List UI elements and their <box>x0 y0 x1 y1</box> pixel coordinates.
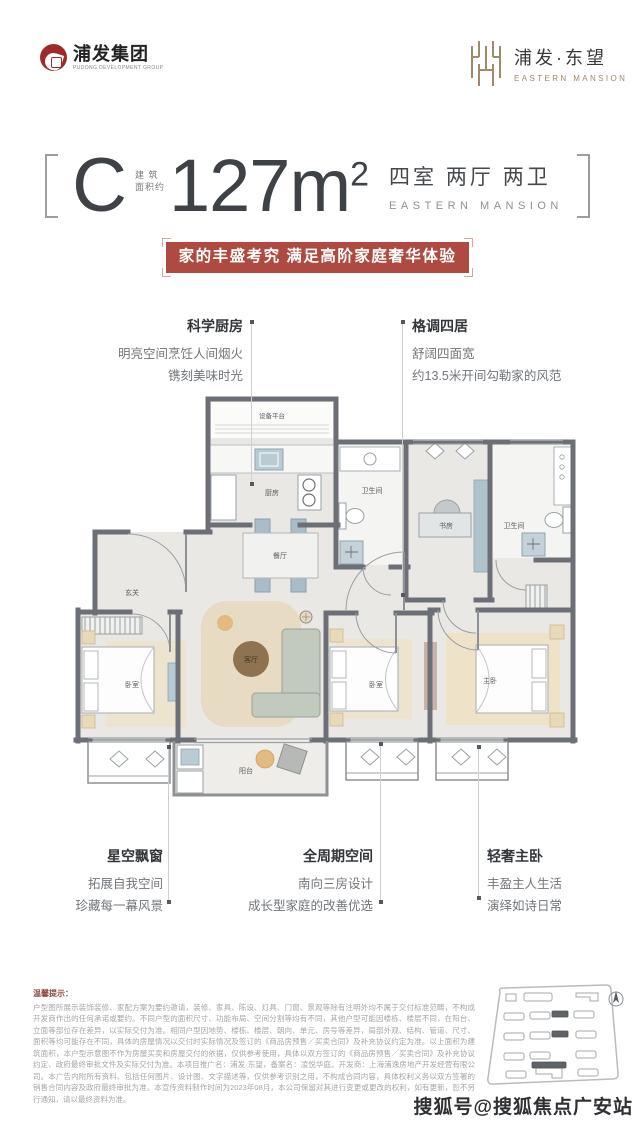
room-label-master: 主卧 <box>483 676 497 685</box>
pudong-group-icon <box>40 44 67 71</box>
callout-kitchen-line2: 镌刻美味时光 <box>60 365 243 387</box>
callout-kitchen: 科学厨房 明亮空间烹饪人间烟火 镌刻美味时光 <box>60 316 243 387</box>
room-count-sub: EASTERN MANSION <box>389 200 563 212</box>
callout-bay-window-line1: 拓展自我空间 <box>20 873 163 895</box>
leader-line-full-cycle <box>380 744 381 902</box>
room-label-equipment: 设备平台 <box>259 411 285 420</box>
developer-logo-name: 浦发集团 <box>73 45 163 63</box>
callout-full-cycle-line2: 成长型家庭的改善优选 <box>180 895 373 917</box>
living-room-furniture <box>201 601 320 727</box>
area-note-line2: 面积约 <box>135 181 165 193</box>
callout-master: 轻奢主卧 丰盈主人生活 演绎如诗日常 <box>487 846 632 917</box>
unit-area: 127m2 <box>169 153 369 220</box>
callout-four-rooms-line2: 约13.5米开间勾勒家的风范 <box>412 365 624 387</box>
callout-bay-window-line2: 珍藏每一幕风景 <box>20 895 163 917</box>
callout-full-cycle-title: 全周期空间 <box>180 846 373 866</box>
room-count: 四室 两厅 两卫 EASTERN MANSION <box>389 161 563 212</box>
right-bracket <box>577 154 590 218</box>
area-superscript: 2 <box>350 155 369 193</box>
eastern-mansion-emblem-icon <box>468 40 504 92</box>
room-label-foyer: 玄关 <box>125 588 139 597</box>
project-logo-name: 浦发·东望 <box>514 49 627 67</box>
developer-logo: 浦发集团 PUDONG DEVELOPMENT GROUP <box>40 44 163 71</box>
project-logo: 浦发·东望 EASTERN MANSION <box>468 40 627 92</box>
callout-four-rooms-line1: 舒阔四面宽 <box>412 343 624 365</box>
callout-four-rooms: 格调四居 舒阔四面宽 约13.5米开间勾勒家的风范 <box>412 316 624 387</box>
callout-master-line2: 演绎如诗日常 <box>487 895 632 917</box>
callout-kitchen-title: 科学厨房 <box>60 316 243 336</box>
callout-four-rooms-title: 格调四居 <box>412 316 624 336</box>
floorplan: 设备平台 厨房 餐厅 玄关 卫生间 书房 卫生间 卧室 客厅 阳台 卧室 主卧 <box>58 395 578 807</box>
leader-line-bay-window <box>168 747 169 902</box>
unit-headline: C 建 筑 面积约 127m2 四室 两厅 两卫 EASTERN MANSION <box>0 152 635 220</box>
callout-full-cycle: 全周期空间 南向三房设计 成长型家庭的改善优选 <box>180 846 373 917</box>
watermark: 搜狐号@搜狐焦点广安站 <box>413 1092 633 1119</box>
room-label-study: 书房 <box>439 521 453 530</box>
project-logo-sub: EASTERN MANSION <box>514 74 627 83</box>
disclaimer-text: 户型图所展示装饰装修、家配方案为要约邀请，装修、家具、陈设、灯具、门窗、景观等除… <box>33 1003 475 1104</box>
unit-letter: C <box>72 152 127 220</box>
room-label-bath2: 卫生间 <box>504 521 525 530</box>
room-label-bedroom2: 卧室 <box>369 680 383 689</box>
leader-line-kitchen <box>251 322 252 484</box>
callout-kitchen-line1: 明亮空间烹饪人间烟火 <box>60 343 243 365</box>
room-label-kitchen: 厨房 <box>265 488 279 497</box>
siteplan <box>480 983 632 1091</box>
disclaimer: 温馨提示： 户型图所展示装饰装修、家配方案为要约邀请，装修、家具、陈设、灯具、门… <box>33 988 475 1105</box>
callout-full-cycle-line1: 南向三房设计 <box>180 873 373 895</box>
developer-logo-sub: PUDONG DEVELOPMENT GROUP <box>73 65 163 71</box>
room-label-bedroom1: 卧室 <box>125 680 139 689</box>
leader-line-four-rooms <box>402 322 403 595</box>
area-note: 建 筑 面积约 <box>135 169 165 193</box>
callout-master-title: 轻奢主卧 <box>487 846 632 866</box>
left-bracket <box>45 154 58 218</box>
callout-master-line1: 丰盈主人生活 <box>487 873 632 895</box>
room-count-text: 四室 两厅 两卫 <box>389 161 563 191</box>
callout-bay-window: 星空飘窗 拓展自我空间 珍藏每一幕风景 <box>20 846 163 917</box>
slogan-banner-corners: 家的丰盛考究 满足高阶家庭奢华体验 <box>166 242 470 273</box>
disclaimer-label: 温馨提示： <box>33 988 475 1000</box>
room-label-bath1: 卫生间 <box>362 486 383 495</box>
room-label-dining: 餐厅 <box>273 551 287 560</box>
area-note-line1: 建 筑 <box>135 169 165 181</box>
leader-line-master <box>478 747 479 898</box>
room-label-balcony: 阳台 <box>239 766 253 775</box>
room-label-living: 客厅 <box>244 655 258 664</box>
poster-page: 浦发集团 PUDONG DEVELOPMENT GROUP 浦发·东望 EAST… <box>0 0 635 1125</box>
callout-bay-window-title: 星空飘窗 <box>20 846 163 866</box>
